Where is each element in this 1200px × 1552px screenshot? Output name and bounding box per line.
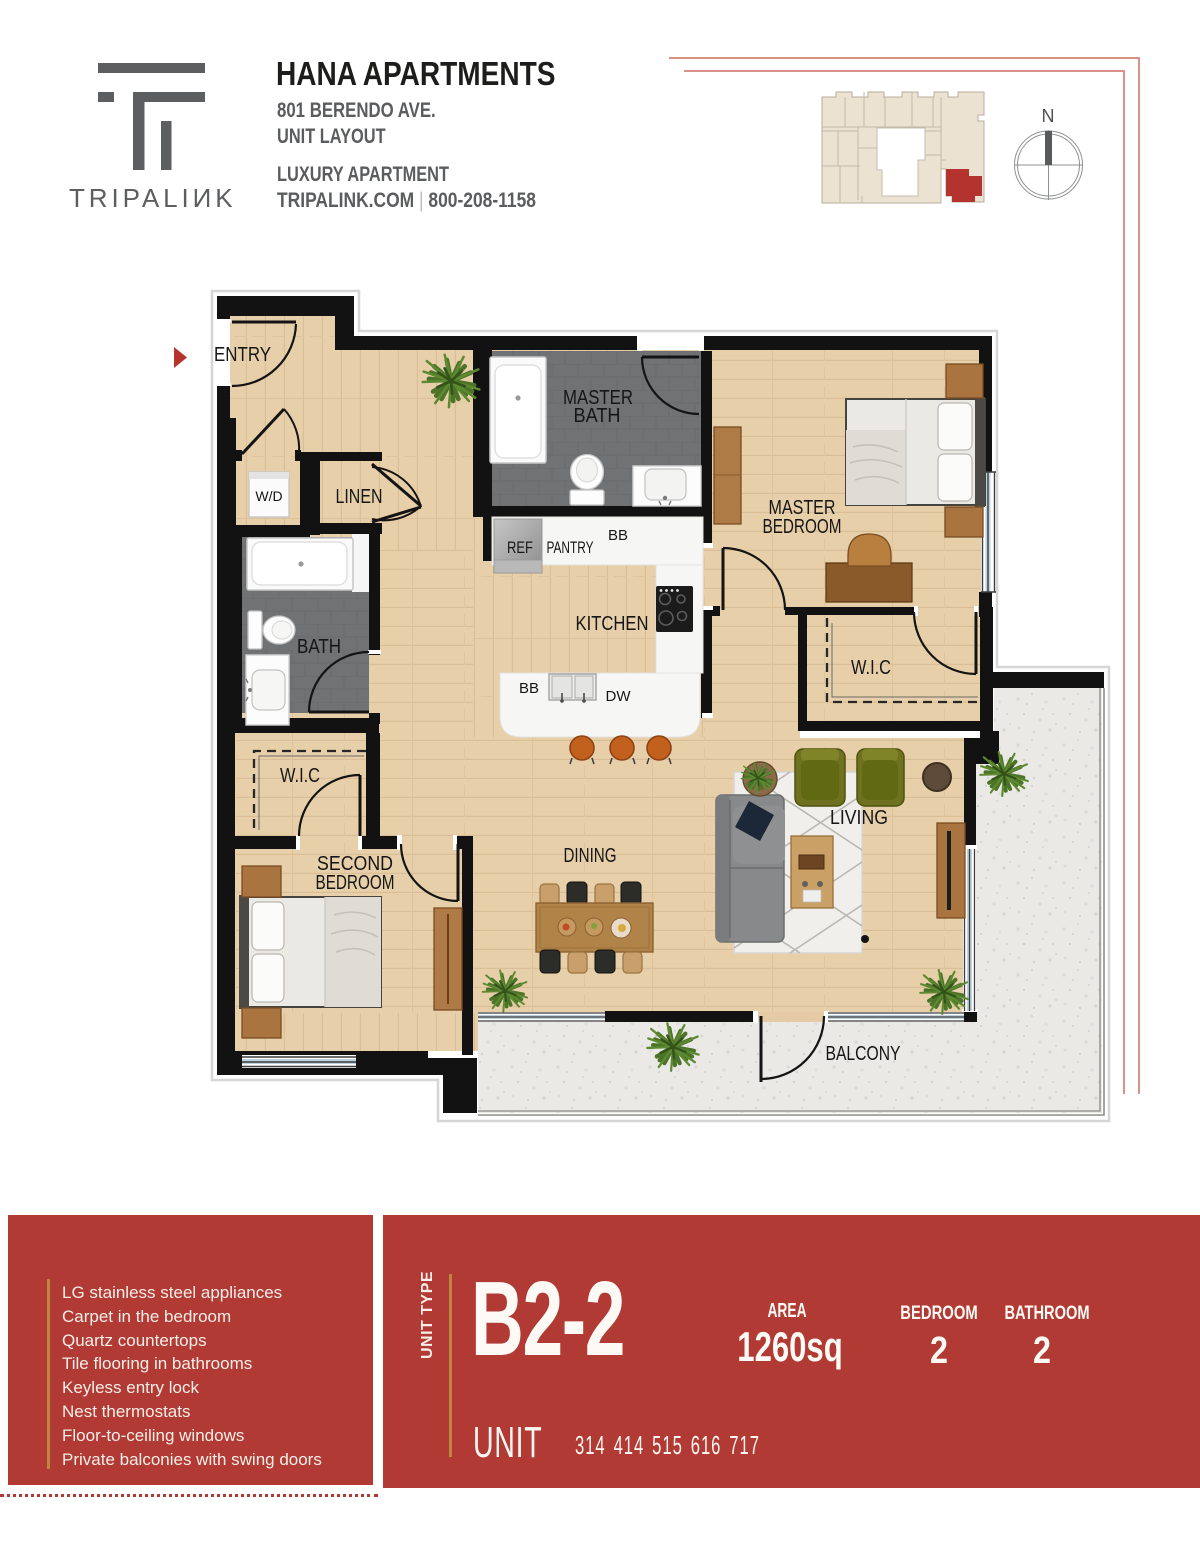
svg-text:BB: BB	[519, 680, 539, 697]
svg-text:W.I.C: W.I.C	[851, 657, 891, 679]
svg-text:W/D: W/D	[255, 488, 282, 504]
svg-text:LINEN: LINEN	[336, 486, 383, 508]
svg-text:BEDROOM: BEDROOM	[316, 872, 395, 894]
svg-text:BATH: BATH	[297, 636, 341, 658]
svg-text:LIVING: LIVING	[830, 807, 888, 829]
svg-text:ENTRY: ENTRY	[214, 344, 271, 366]
svg-text:DW: DW	[606, 688, 632, 705]
svg-text:PANTRY: PANTRY	[547, 538, 594, 557]
svg-text:BEDROOM: BEDROOM	[763, 516, 842, 538]
svg-text:BATH: BATH	[574, 405, 621, 427]
svg-text:DINING: DINING	[564, 845, 617, 867]
svg-text:BALCONY: BALCONY	[826, 1043, 901, 1065]
svg-text:BB: BB	[608, 527, 628, 544]
svg-text:KITCHEN: KITCHEN	[576, 613, 649, 635]
svg-text:REF: REF	[507, 538, 533, 557]
svg-text:W.I.C: W.I.C	[280, 765, 320, 787]
